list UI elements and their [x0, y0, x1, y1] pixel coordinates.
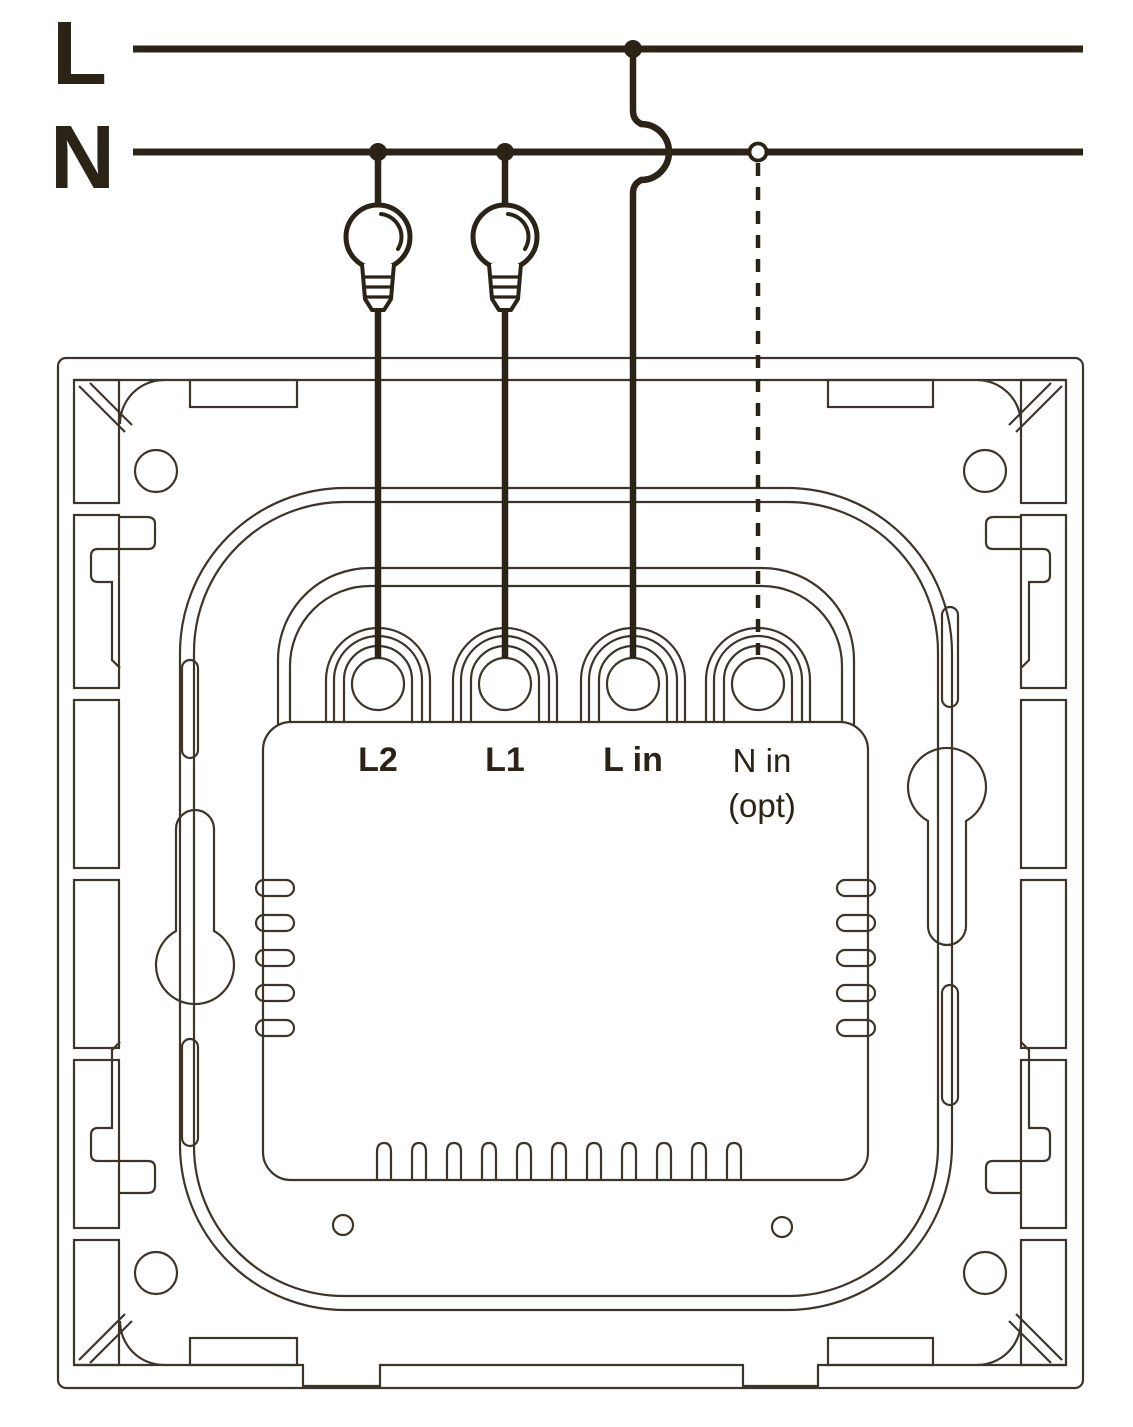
terminal-label-n-in-opt: (opt) — [728, 787, 796, 824]
live-rail-label: L — [52, 4, 107, 104]
diagram-canvas: L2 L1 L in N in (opt) — [0, 0, 1133, 1427]
terminal-label-l2: L2 — [358, 741, 398, 779]
screw-hole-bottom-left — [135, 1252, 177, 1294]
power-rails — [133, 40, 1083, 161]
terminal-hole-l1 — [479, 658, 531, 710]
plate-inner-bottom-edge — [74, 1365, 1066, 1386]
lamp-icon-2 — [473, 205, 537, 310]
screw-hole-top-right — [964, 450, 1006, 492]
screw-hole-bottom-right — [964, 1252, 1006, 1294]
open-connector-dot-neutral — [750, 144, 767, 161]
terminal-label-l1: L1 — [485, 741, 525, 779]
plate-left-wall-segments — [74, 380, 119, 1365]
terminal-hole-n-in — [732, 658, 784, 710]
plate-right-wall-segments — [1021, 380, 1066, 1365]
terminal-archways — [326, 628, 810, 723]
junction-dot-live — [624, 40, 642, 58]
terminal-arch-n-in — [706, 628, 810, 723]
screw-hole-top-left — [135, 450, 177, 492]
pilot-hole-right — [772, 1217, 792, 1237]
junction-dot-neutral-1 — [369, 143, 387, 161]
keyhole-slot-right — [908, 748, 986, 945]
terminal-hole-l2 — [352, 658, 404, 710]
switch-module: L2 L1 L in N in (opt) — [256, 722, 875, 1237]
terminal-hole-l-in — [607, 658, 659, 710]
lamp-icon-1 — [346, 205, 410, 310]
terminal-label-l-in: L in — [603, 741, 663, 779]
terminal-label-n-in: N in — [733, 742, 792, 779]
neutral-rail-label: N — [50, 108, 115, 208]
wire-l-in-with-crossover-hop — [633, 49, 669, 658]
wires — [378, 49, 758, 658]
wiring-diagram: L2 L1 L in N in (opt) — [0, 0, 1133, 1427]
pilot-hole-left — [333, 1215, 353, 1235]
junction-dot-neutral-2 — [496, 143, 514, 161]
